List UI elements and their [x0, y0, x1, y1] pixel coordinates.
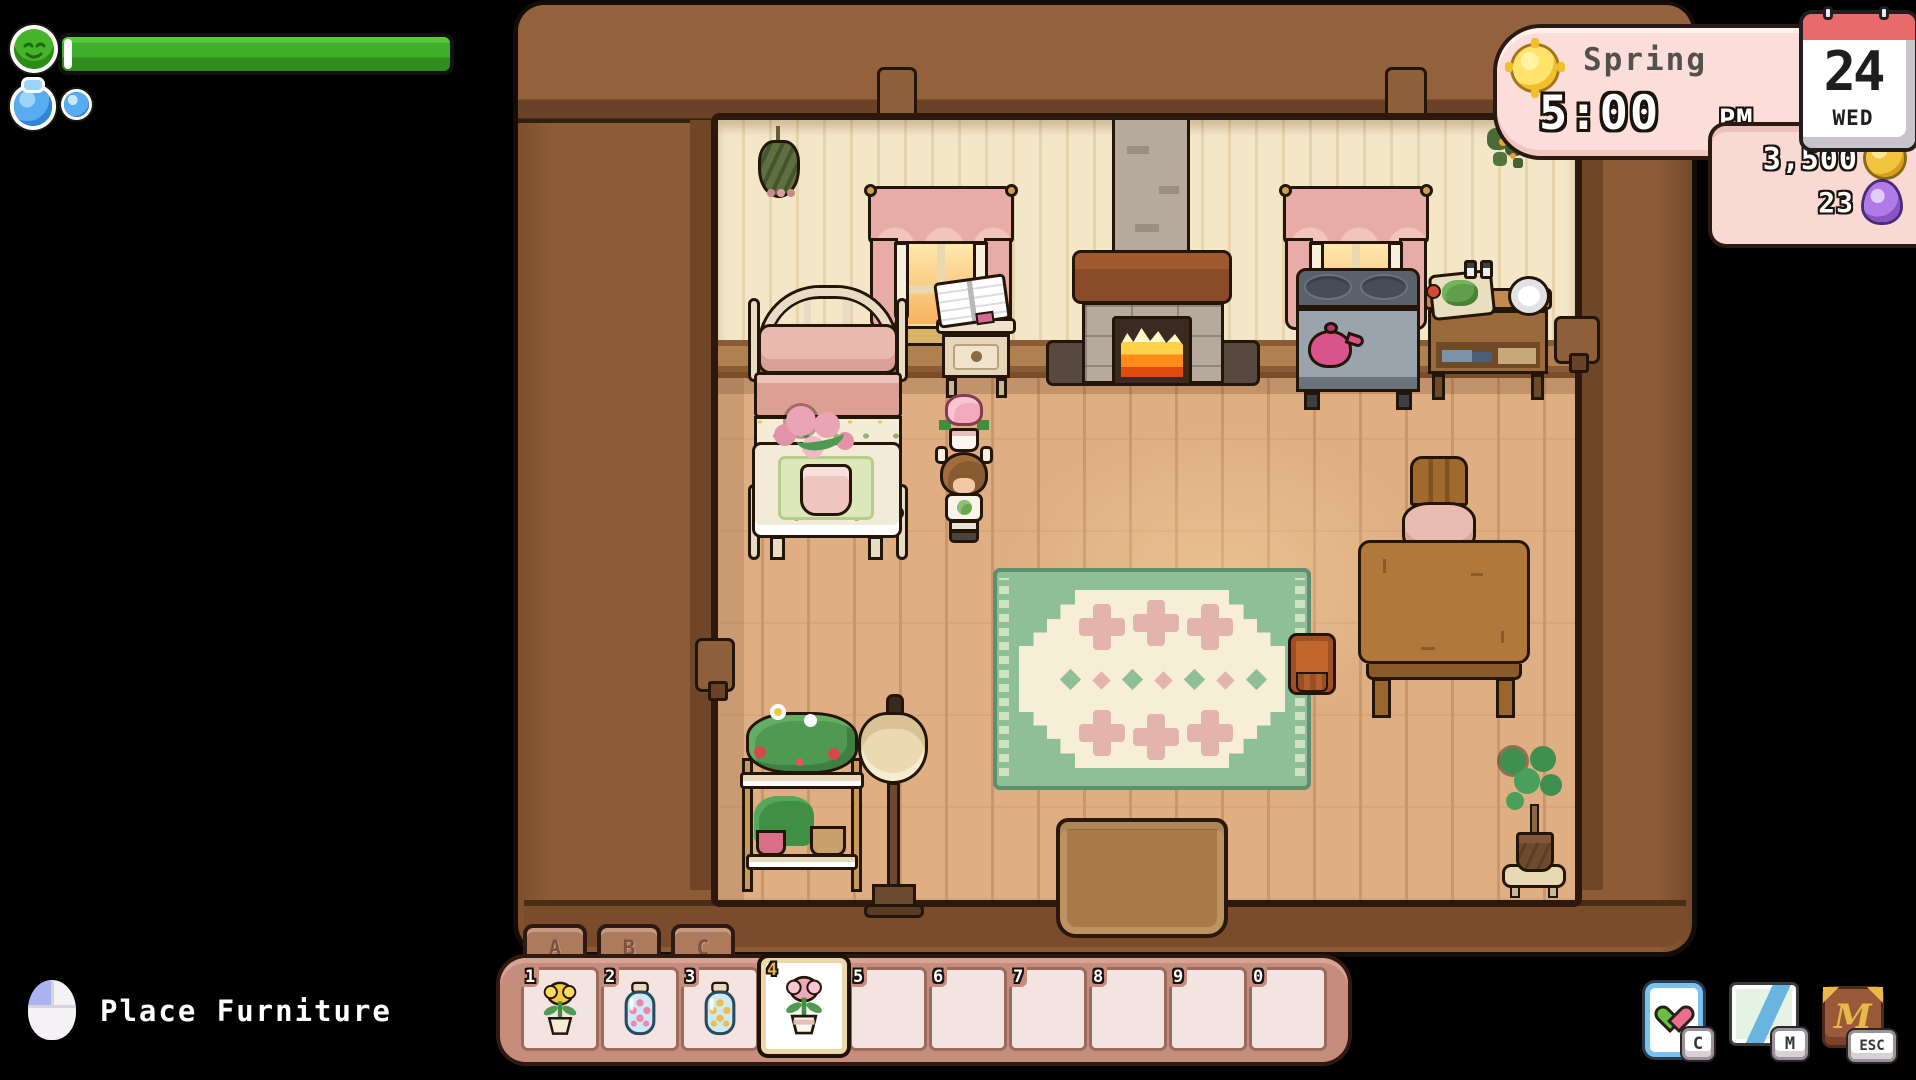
player-character[interactable] — [933, 394, 995, 546]
calendar-widget: 24 WED — [1803, 14, 1915, 148]
hotbar-slot-0[interactable]: 0 — [1249, 967, 1327, 1051]
mouse-left-click-icon — [28, 980, 76, 1040]
health-smiley-icon — [14, 29, 54, 69]
frame-knob — [877, 67, 917, 125]
white-flower-icon — [804, 714, 817, 727]
sun-icon — [1513, 46, 1557, 90]
hotbar-slot-5[interactable]: 5 — [849, 967, 927, 1051]
rug[interactable] — [993, 568, 1311, 790]
held-pink-tulip — [945, 394, 983, 426]
fireplace-firebox — [1112, 316, 1192, 386]
calendar-day: 24 — [1803, 40, 1903, 103]
pink-pot — [756, 830, 786, 856]
yellow-petal-jar-item-icon — [700, 981, 740, 1037]
yellow-tulip-item-icon — [540, 981, 580, 1037]
plant-shelf[interactable] — [740, 712, 864, 894]
pink-teapot[interactable] — [1302, 322, 1360, 368]
curtain-hook-icon — [1420, 184, 1433, 197]
hotbar: 1 2 3 — [500, 958, 1348, 1062]
burner-icon — [1362, 276, 1406, 298]
hotbar-slot-6[interactable]: 6 — [929, 967, 1007, 1051]
tomato — [1426, 284, 1441, 299]
pink-tulip-item-icon — [782, 975, 826, 1037]
hanging-herbs[interactable] — [752, 126, 806, 210]
hotbar-slot-9[interactable]: 9 — [1169, 967, 1247, 1051]
floor-lamp[interactable] — [858, 694, 932, 920]
essence-gem-icon — [1864, 182, 1900, 222]
shortcut-key-esc: ESC — [1848, 1030, 1896, 1062]
frame-knob — [695, 638, 735, 692]
room-interior — [718, 120, 1575, 900]
curtain-hook-icon — [1279, 184, 1292, 197]
door-mat[interactable] — [1056, 818, 1228, 938]
hotbar-slot-3[interactable]: 3 — [681, 967, 759, 1051]
hotbar-slot-4-selected[interactable]: 4 — [761, 958, 847, 1054]
hotbar-slot-1[interactable]: 1 — [521, 967, 599, 1051]
action-hint-label: Place Furniture — [100, 994, 392, 1028]
shaker-icon — [1480, 260, 1493, 279]
tan-pot — [810, 826, 846, 856]
frame-knob — [1554, 316, 1600, 364]
potted-plant[interactable] — [1500, 748, 1570, 900]
frame-seam-right — [1575, 120, 1603, 890]
strawberry-plants — [746, 712, 858, 774]
small-stool[interactable] — [1288, 633, 1336, 695]
curtain-hook-icon — [864, 184, 877, 197]
stove[interactable] — [1296, 268, 1420, 418]
season-label: Spring — [1583, 42, 1707, 78]
pillow — [758, 324, 898, 374]
essence-amount: 23 — [1818, 186, 1854, 219]
kitchen-counter[interactable] — [1424, 288, 1552, 406]
hotbar-slot-8[interactable]: 8 — [1089, 967, 1167, 1051]
frame-knob — [1385, 67, 1427, 125]
lamp-shade — [858, 712, 928, 784]
plate — [1508, 276, 1550, 316]
water-jug-icon — [14, 88, 52, 126]
frame-seam-left — [690, 120, 718, 890]
flower-pot — [800, 464, 852, 516]
dining-table[interactable] — [1358, 540, 1533, 718]
water-orb-icon — [64, 92, 89, 117]
clock-time: 5:00 — [1539, 86, 1660, 141]
burner-icon — [1306, 276, 1350, 298]
game-screen: Spring 5:00 PM 24 WED 3,500 23 Place Fur… — [0, 0, 1916, 1080]
shortcut-key-c: C — [1682, 1028, 1714, 1060]
fireplace-chimney — [1112, 120, 1190, 260]
flower-table[interactable] — [752, 432, 906, 562]
health-bar — [58, 33, 454, 75]
hotbar-slot-2[interactable]: 2 — [601, 967, 679, 1051]
shortcut-key-m: M — [1772, 1028, 1808, 1060]
fire-flames — [1121, 327, 1183, 377]
calendar-weekday: WED — [1803, 106, 1903, 130]
shaker-icon — [1464, 260, 1477, 279]
vegetables — [1442, 280, 1478, 306]
held-flower-pot — [949, 428, 979, 452]
fireplace-mantel[interactable] — [1072, 250, 1232, 304]
white-flower-icon — [770, 704, 786, 720]
nightstand[interactable] — [936, 296, 1016, 402]
pink-petal-jar-item-icon — [620, 981, 660, 1037]
drawer-knob-icon — [971, 351, 982, 362]
hotbar-slot-7[interactable]: 7 — [1009, 967, 1087, 1051]
curtain-hook-icon — [1005, 184, 1018, 197]
